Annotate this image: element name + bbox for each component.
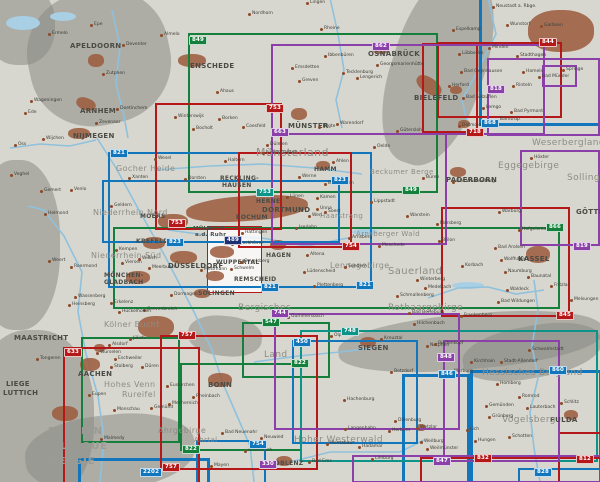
city-dot <box>121 262 124 265</box>
sheet-label-832[interactable]: 832 <box>474 454 492 463</box>
city-label: Lüdenscheid <box>307 269 335 274</box>
city-label: HAGEN <box>266 252 291 259</box>
city-label: Hameln <box>526 69 543 74</box>
sheet-label-812[interactable]: 812 <box>576 455 594 464</box>
city-label: Medebach <box>428 285 451 290</box>
city-label: Hilchenbach <box>417 321 445 326</box>
city-label: ARNHEM <box>80 107 116 115</box>
city-label: Gevelsberg <box>244 259 270 264</box>
city-dot <box>426 448 429 451</box>
city-label: Schotten <box>512 434 532 439</box>
city-label: Warendorf <box>340 121 363 126</box>
sheet-label-844[interactable]: 844 <box>539 38 557 47</box>
city-dot <box>100 438 103 441</box>
city-label: Dorsten <box>188 176 206 181</box>
city-dot <box>313 285 316 288</box>
city-label: Wesel <box>158 156 171 161</box>
city-label: BIELEFELD <box>414 94 459 102</box>
city-label: Büren <box>426 175 439 180</box>
city-label: Coesfeld <box>246 124 265 129</box>
city-label: Dülmen <box>270 142 288 147</box>
city-label: Doetinchem <box>120 106 147 111</box>
city-dot <box>488 416 491 419</box>
city-label: DORTMUND <box>262 206 310 214</box>
city-dot <box>348 237 351 240</box>
city-label: Frankenberg <box>464 313 492 318</box>
city-label: ENSCHEDE <box>190 62 234 70</box>
sheet-label-663[interactable]: 663 <box>271 128 289 137</box>
city-label: Hückelhoven <box>122 309 151 314</box>
city-label: Malmedy <box>104 436 125 441</box>
city-label: Nordhorn <box>252 11 273 16</box>
region-label: Eggegebirge <box>498 161 559 171</box>
city-dot <box>540 25 543 28</box>
city-label: Emsdetten <box>295 65 319 70</box>
city-dot <box>30 100 33 103</box>
city-label: Montabaur <box>330 441 354 446</box>
city-dot <box>497 301 500 304</box>
city-dot <box>488 47 491 50</box>
city-dot <box>14 144 17 147</box>
city-label: Warburg <box>502 209 521 214</box>
city-dot <box>500 361 503 364</box>
region-label: Beckumer Berge <box>370 168 434 176</box>
city-label: a.d. Ruhr <box>195 232 226 238</box>
city-label: Korbach <box>465 263 483 268</box>
city-dot <box>506 24 509 27</box>
city-dot <box>74 296 77 299</box>
city-label: Bad Pyrmont <box>514 109 543 114</box>
city-label: Bad Wildungen <box>501 299 535 304</box>
city-label: Plettenberg <box>317 283 343 288</box>
city-dot <box>44 213 47 216</box>
city-label: Kreuztal <box>384 336 402 341</box>
city-label: Melsungen <box>574 297 598 302</box>
city-label: Lünen <box>290 194 304 199</box>
city-dot <box>242 126 245 129</box>
city-label: Epe <box>94 22 102 27</box>
city-dot <box>498 211 501 214</box>
city-dot <box>376 64 379 67</box>
sheet-label-848[interactable]: 848 <box>437 353 455 362</box>
city-dot <box>482 107 485 110</box>
city-label: Lauterbach <box>530 405 555 410</box>
sheet-label-849[interactable]: 849 <box>402 186 420 195</box>
city-label: Bad Wünnenberg <box>456 179 495 184</box>
city-dot <box>110 366 113 369</box>
city-label: Lübbecke <box>462 51 483 56</box>
city-dot <box>408 312 411 315</box>
city-label: RECKLING- <box>220 175 259 182</box>
city-label: HAMM <box>314 166 337 173</box>
sheet-label-754[interactable]: 754 <box>249 440 267 449</box>
city-dot <box>36 358 39 361</box>
city-label: Werl <box>312 213 322 218</box>
city-label: Telgte <box>322 124 335 129</box>
city-label: Schwalmstadt <box>532 347 564 352</box>
city-label: Heinsberg <box>72 302 95 307</box>
city-dot <box>550 285 553 288</box>
city-dot <box>184 178 187 181</box>
sheet-label-757[interactable]: 757 <box>162 463 180 472</box>
city-dot <box>516 55 519 58</box>
city-dot <box>460 315 463 318</box>
city-dot <box>390 371 393 374</box>
city-dot <box>241 232 244 235</box>
city-dot <box>518 229 521 232</box>
city-dot <box>154 158 157 161</box>
city-label: Oelde <box>377 144 390 149</box>
city-dot <box>70 189 73 192</box>
country-label: BELGIQUE <box>44 441 108 452</box>
sheet-label-866[interactable]: 866 <box>546 223 564 232</box>
city-label: Waldeck <box>510 287 529 292</box>
city-dot <box>522 71 525 74</box>
city-label: Geldern <box>114 203 132 208</box>
city-dot <box>216 91 219 94</box>
city-dot <box>470 361 473 364</box>
city-label: SOLINGEN <box>198 290 235 297</box>
city-dot <box>286 196 289 199</box>
city-label: GLADBACH <box>104 279 143 286</box>
city-label: Iserlohn <box>299 225 317 230</box>
city-dot <box>356 77 359 80</box>
city-label: Meerbusch <box>152 265 177 270</box>
city-dot <box>150 407 153 410</box>
city-dot <box>518 396 521 399</box>
city-label: Fritzlar <box>554 283 569 288</box>
city-label: Lingen <box>310 0 325 5</box>
city-dot <box>388 430 391 433</box>
city-label: LUTTICH <box>3 389 38 397</box>
city-label: BONN <box>208 381 232 389</box>
sheet-label-822[interactable]: 822 <box>182 445 200 454</box>
city-label: Bad Münder <box>542 74 569 79</box>
city-dot <box>306 2 309 5</box>
city-label: Mettmann <box>204 267 227 272</box>
sheet-label-821[interactable]: 821 <box>261 283 279 292</box>
city-label: Schwelm <box>234 266 254 271</box>
city-label: Bad Neuenahr <box>225 430 257 435</box>
sheet-label-744[interactable]: 744 <box>271 309 289 318</box>
city-dot <box>70 266 73 269</box>
city-dot <box>115 249 118 252</box>
city-label: MAASTRICHT <box>14 334 68 342</box>
sheet-label-819[interactable]: 819 <box>573 242 591 251</box>
city-dot <box>560 402 563 405</box>
city-dot <box>166 385 169 388</box>
city-dot <box>200 269 203 272</box>
city-dot <box>466 429 469 432</box>
sheet-label-754r[interactable]: 754 <box>342 242 360 251</box>
city-dot <box>218 118 221 121</box>
city-dot <box>102 73 105 76</box>
city-label: Alsdorf <box>112 342 128 347</box>
city-label: NIJMEGEN <box>73 132 115 140</box>
city-label: Höxter <box>534 155 549 160</box>
city-label: Hofgeismar <box>522 227 548 232</box>
city-label: Wetzlar <box>420 425 437 430</box>
city-label: REMSCHEID <box>234 276 276 283</box>
city-label: MÖNCHEN- <box>104 272 144 279</box>
sheet-label-633[interactable]: 633 <box>64 348 82 357</box>
sheet-label-547[interactable]: 547 <box>262 318 280 327</box>
city-label: Grünberg <box>492 414 513 419</box>
city-label: Mayen <box>214 463 229 468</box>
sheet-outline-744[interactable] <box>274 313 460 430</box>
city-label: Schmallenberg <box>400 293 434 298</box>
city-label: Stadt-Allendorf <box>504 359 538 364</box>
sheet-label-753[interactable]: 753 <box>266 104 284 113</box>
sheet-label-718[interactable]: 718 <box>466 128 484 137</box>
city-dot <box>308 461 311 464</box>
city-dot <box>224 160 227 163</box>
city-dot <box>373 146 376 149</box>
region-label: Land <box>264 350 288 360</box>
city-dot <box>295 227 298 230</box>
city-dot <box>485 405 488 408</box>
city-dot <box>113 409 116 412</box>
city-dot <box>90 24 93 27</box>
sheet-label-2202[interactable]: 2202 <box>140 468 162 477</box>
city-dot <box>244 450 247 453</box>
city-dot <box>436 223 439 226</box>
city-label: Baunatal <box>531 274 551 279</box>
city-label: Almelo <box>164 32 179 37</box>
sheet-label-860[interactable]: 860 <box>549 366 567 375</box>
city-label: Barntrup <box>500 117 520 122</box>
city-dot <box>316 197 319 200</box>
city-label: Dormagen <box>174 292 198 297</box>
city-dot <box>380 338 383 341</box>
city-label: Lengerich <box>360 75 382 80</box>
sheet-label-846[interactable]: 846 <box>438 370 456 379</box>
city-label: Springe <box>566 67 583 72</box>
city-dot <box>562 69 565 72</box>
city-label: Arnsberg <box>352 235 372 240</box>
city-label: Bad Oeynhausen <box>464 69 502 74</box>
city-dot <box>262 152 265 155</box>
city-label: Limburg <box>375 456 393 461</box>
city-label: Hachenburg <box>347 397 374 402</box>
city-dot <box>114 358 117 361</box>
city-dot <box>508 436 511 439</box>
city-dot <box>116 108 119 111</box>
city-dot <box>462 97 465 100</box>
city-label: Lich <box>470 427 479 432</box>
city-dot <box>248 13 251 16</box>
city-label: Willich <box>142 256 157 261</box>
city-dot <box>221 432 224 435</box>
city-dot <box>452 181 455 184</box>
city-label: Altena <box>310 252 324 257</box>
city-label: Xanten <box>132 175 148 180</box>
region-label: Niederrhein Nord <box>93 208 168 217</box>
sheet-label-823[interactable]: 823 <box>166 238 184 247</box>
city-label: Bad Ems <box>312 459 332 464</box>
sheet-label-822[interactable]: 822 <box>291 359 309 368</box>
city-dot <box>378 245 381 248</box>
city-dot <box>110 205 113 208</box>
city-dot <box>88 394 91 397</box>
city-label: Minden <box>492 45 508 50</box>
city-label: SIEGEN <box>358 344 389 352</box>
city-label: Stadthagen <box>520 53 546 58</box>
city-dot <box>424 287 427 290</box>
city-dot <box>122 44 125 47</box>
city-label: Oss <box>18 142 26 147</box>
city-dot <box>68 304 71 307</box>
city-dot <box>141 366 144 369</box>
sheet-label-823[interactable]: 823 <box>331 176 349 185</box>
sheet-label-450[interactable]: 450 <box>293 338 311 347</box>
city-label: Meschede <box>382 243 405 248</box>
city-label: AACHEN <box>78 370 112 378</box>
sheet-label-753[interactable]: 753 <box>168 219 186 228</box>
city-label: Betzdorf <box>394 369 413 374</box>
city-dot <box>108 344 111 347</box>
city-label: Herford <box>452 83 469 88</box>
city-dot <box>528 349 531 352</box>
sheet-label-849[interactable]: 849 <box>189 36 207 45</box>
city-label: Würselen <box>100 350 121 355</box>
city-label: Ermelo <box>52 31 68 36</box>
city-dot <box>396 130 399 133</box>
city-dot <box>160 34 163 37</box>
city-label: LIEGE <box>6 380 30 388</box>
city-label: Neuwied <box>264 435 284 440</box>
sheet-label-821[interactable]: 821 <box>110 149 128 158</box>
city-dot <box>452 29 455 32</box>
city-label: Greven <box>302 78 318 83</box>
sheet-label-845[interactable]: 845 <box>556 311 574 320</box>
city-label: Wunstorf <box>510 22 530 27</box>
city-label: Wijchen <box>46 136 64 141</box>
city-label: Dillenburg <box>398 418 421 423</box>
city-dot <box>420 441 423 444</box>
sheet-label-868[interactable]: 868 <box>481 119 499 128</box>
city-label: Rinteln <box>516 83 532 88</box>
city-label: Naumburg <box>508 269 532 274</box>
city-label: Zevenaar <box>99 120 121 125</box>
city-dot <box>434 343 437 346</box>
city-label: Borken <box>222 116 238 121</box>
city-label: Deventer <box>126 42 147 47</box>
city-dot <box>344 266 347 269</box>
city-label: HERNE <box>256 198 280 205</box>
city-label: Venlo <box>74 187 86 192</box>
city-dot <box>538 76 541 79</box>
urban-area <box>88 54 104 67</box>
city-dot <box>416 279 419 282</box>
city-dot <box>326 443 329 446</box>
city-label: Gemünden <box>489 403 514 408</box>
city-label: Hattingen <box>245 230 267 235</box>
city-dot <box>306 254 309 257</box>
city-dot <box>336 123 339 126</box>
city-label: Jülich <box>133 336 145 341</box>
sheet-label-847[interactable]: 847 <box>433 457 451 466</box>
city-dot <box>422 177 425 180</box>
sheet-outline-848[interactable] <box>443 340 560 462</box>
city-dot <box>530 157 533 160</box>
city-dot <box>330 335 333 338</box>
city-dot <box>512 85 515 88</box>
sheet-label-828[interactable]: 828 <box>534 468 552 477</box>
city-label: Georgsmarienhütte <box>380 62 424 67</box>
city-dot <box>460 71 463 74</box>
region-label: Weserbergland <box>532 138 600 148</box>
sheet-label-862[interactable]: 862 <box>372 42 390 51</box>
city-dot <box>40 190 43 193</box>
city-label: Biedenkopf <box>438 341 463 346</box>
city-label: Gummersbach <box>291 314 324 319</box>
city-dot <box>110 302 113 305</box>
city-dot <box>332 161 335 164</box>
city-label: Werne <box>302 174 316 179</box>
city-dot <box>240 261 243 264</box>
city-label: Unna <box>320 206 332 211</box>
city-label: Gütersloh <box>400 128 422 133</box>
city-dot <box>298 176 301 179</box>
city-label: Bocholt <box>196 126 213 131</box>
city-dot <box>448 85 451 88</box>
city-dot <box>396 295 399 298</box>
city-dot <box>500 259 503 262</box>
city-label: Garbsen <box>544 23 563 28</box>
region-label: Ahrtal <box>194 436 217 444</box>
city-label: Kamen <box>320 195 336 200</box>
city-label: Ede <box>28 110 36 115</box>
city-label: Roermond <box>74 264 97 269</box>
sheet-label-757[interactable]: 757 <box>178 331 196 340</box>
city-label: Erkelenz <box>114 300 133 305</box>
sheet-label-821[interactable]: 821 <box>356 281 374 290</box>
city-dot <box>266 144 269 147</box>
region-label: Sauerland <box>388 266 442 277</box>
city-dot <box>48 260 51 263</box>
city-label: Rheine <box>324 26 340 31</box>
city-dot <box>526 407 529 410</box>
city-label: Herborn <box>392 428 410 433</box>
sheet-label-753[interactable]: 753 <box>256 188 274 197</box>
city-dot <box>426 345 429 348</box>
city-label: Marsberg <box>440 221 461 226</box>
city-label: Weilmünster <box>430 446 458 451</box>
city-dot <box>570 299 573 302</box>
city-dot <box>492 6 495 9</box>
city-dot <box>291 67 294 70</box>
selected-sheet-label[interactable]: 489 <box>224 236 242 245</box>
sheet-label-748[interactable]: 748 <box>341 327 359 336</box>
city-label: Helmond <box>48 211 68 216</box>
city-dot <box>42 138 45 141</box>
city-label: HAUSEN <box>222 182 252 189</box>
city-dot <box>371 458 374 461</box>
sheet-label-330[interactable]: 330 <box>259 460 277 469</box>
city-label: Rheinbach <box>196 394 220 399</box>
city-dot <box>510 111 513 114</box>
city-label: Romrod <box>522 394 539 399</box>
city-label: Ahlen <box>336 159 349 164</box>
sheet-label-818[interactable]: 818 <box>487 85 505 94</box>
city-label: Kirchhain <box>474 359 495 364</box>
city-label: Bad Berleburg <box>412 310 444 315</box>
city-label: Zutphen <box>106 71 125 76</box>
city-dot <box>128 177 131 180</box>
city-dot <box>343 399 346 402</box>
city-dot <box>324 55 327 58</box>
